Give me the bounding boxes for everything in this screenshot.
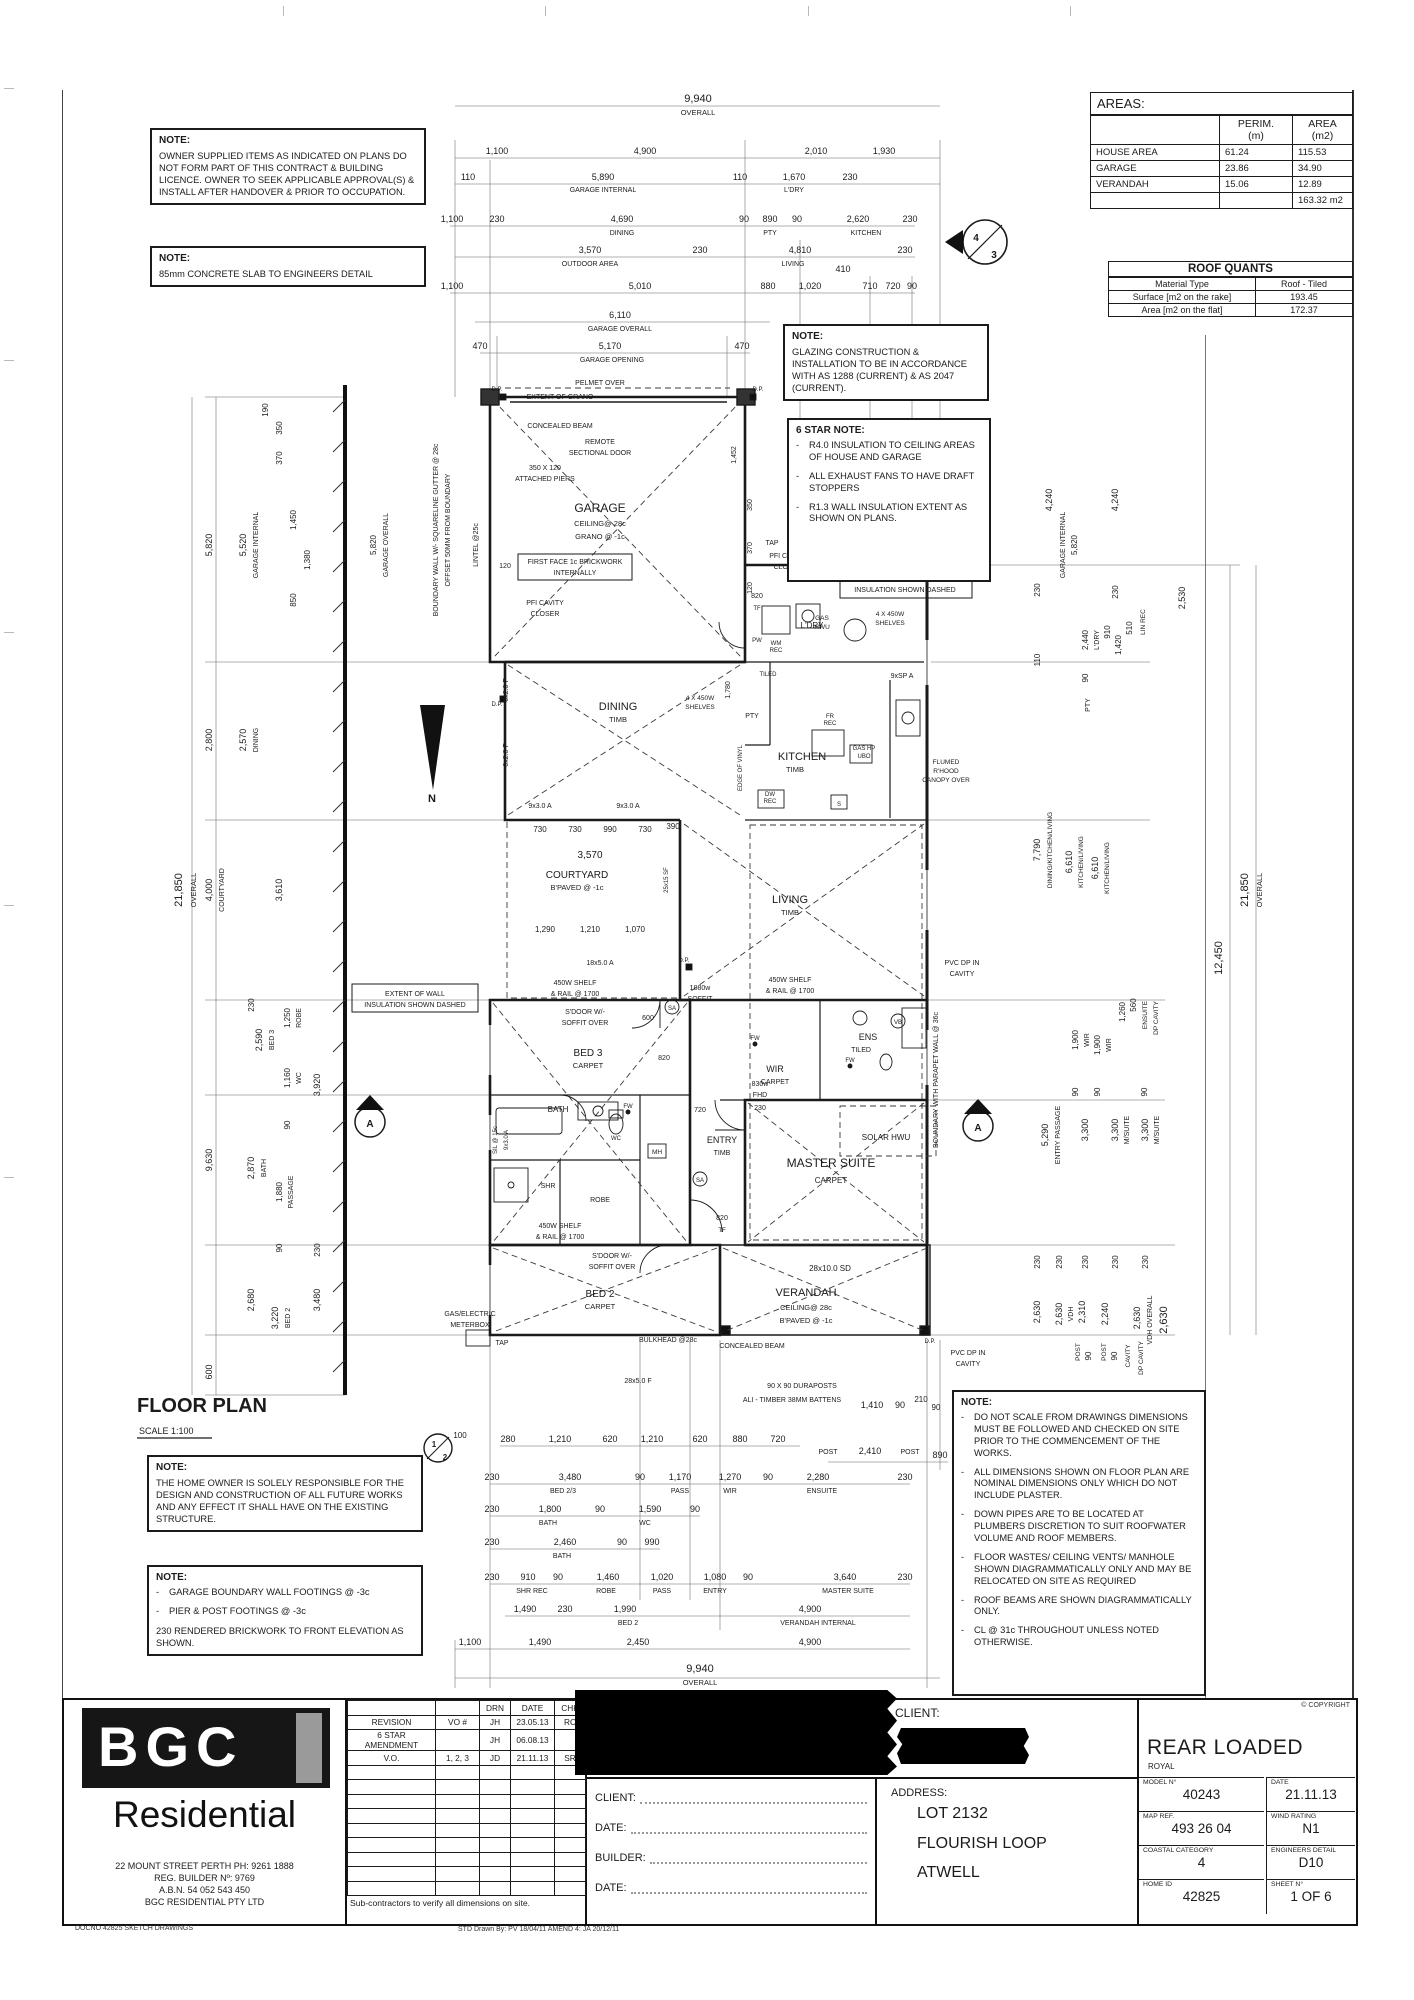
model-cell-value: N1	[1267, 1821, 1355, 1836]
plan-text: 890	[762, 214, 777, 224]
company-address: 22 MOUNT STREET PERTH PH: 9261 1888 REG.…	[64, 1860, 345, 1909]
plan-text: 230	[1111, 585, 1120, 599]
plan-text: GARAGE INTERNAL	[570, 187, 637, 194]
plan-text: 230	[1033, 583, 1042, 597]
plan-text: 350	[747, 499, 754, 511]
plan-text: KITCHEN/LIVING	[1104, 842, 1111, 894]
plan-text: L'DRY	[784, 187, 804, 194]
plan-text: 450W SHELF	[769, 977, 812, 984]
plan-text: 2,440	[1081, 629, 1090, 650]
model-panel: © COPYRIGHT REAR LOADED ROYAL MODEL N°40…	[1139, 1700, 1354, 1924]
table-cell	[1220, 193, 1293, 209]
plan-text: 28x10.0 SD	[809, 1264, 851, 1273]
copyright: © COPYRIGHT	[1301, 1702, 1350, 1709]
plan-text: ENTRY PASSAGE	[1055, 1105, 1062, 1164]
model-cell-label: COASTAL CATEGORY	[1139, 1846, 1264, 1854]
plan-text: 2,590	[254, 1029, 264, 1052]
table-cell	[436, 1730, 480, 1751]
table-cell	[348, 1794, 436, 1809]
plan-text: FHD	[753, 1092, 767, 1099]
plan-text: 880	[760, 281, 775, 291]
plan-text: 90	[739, 214, 749, 224]
plan-text: 230	[489, 214, 504, 224]
model-cell-value: 42825	[1139, 1889, 1264, 1904]
table-cell	[436, 1823, 480, 1838]
model-cell-label: MODEL N°	[1139, 1778, 1264, 1786]
table-row: HOUSE AREA61.24115.53	[1091, 145, 1353, 161]
note-title: NOTE:	[792, 331, 980, 342]
plan-text: 5,820	[204, 534, 214, 557]
plan-text: 990	[603, 825, 617, 834]
table-cell: AREA (m2)	[1293, 116, 1353, 145]
table-cell	[348, 1701, 436, 1716]
plan-text: COURTYARD	[546, 870, 608, 881]
plan-text: DINING	[610, 230, 635, 237]
plan-text: 230	[484, 1504, 499, 1514]
table-cell: DRN	[480, 1701, 511, 1716]
plan-text: KITCHEN/LIVING	[1078, 836, 1085, 888]
plan-text: VERANDAH INTERNAL	[780, 1620, 856, 1627]
plan-text: PTY	[763, 230, 777, 237]
table-cell: 193.45	[1256, 291, 1353, 304]
plan-text: 110	[733, 172, 747, 182]
table-cell: 115.53	[1293, 145, 1353, 161]
plan-text: ENS	[859, 1032, 878, 1042]
plan-text: 90	[617, 1537, 627, 1547]
plan-text: 210	[914, 1395, 928, 1404]
table-cell	[436, 1794, 480, 1809]
plan-text: PASSAGE	[288, 1175, 295, 1208]
plan-text: 28x5.0 F	[624, 1378, 651, 1385]
note-bullet: -CL @ 31c THROUGHOUT UNLESS NOTED OTHERW…	[961, 1625, 1197, 1649]
note-bullet: -FLOOR WASTES/ CEILING VENTS/ MANHOLE SH…	[961, 1552, 1197, 1588]
edge-tick	[1070, 6, 1071, 16]
plan-text: 3,570	[579, 245, 602, 255]
table-cell	[555, 1838, 586, 1853]
table-cell	[511, 1765, 555, 1780]
plan-text: SOFFIT OVER	[562, 1020, 609, 1027]
plan-text: 1,450	[289, 509, 298, 530]
plan-text: REC	[764, 799, 777, 805]
plan-text: CLOSER	[531, 611, 560, 618]
plan-text: 6,610	[1090, 857, 1100, 880]
plan-text: DINING	[253, 728, 260, 753]
model-cell-wind-rating: WIND RATINGN1	[1266, 1811, 1355, 1846]
plan-text: 90	[635, 1472, 645, 1482]
plan-text: GRANO @ -1c	[575, 532, 625, 541]
bgc-panel: BGC Residential 22 MOUNT STREET PERTH PH…	[64, 1700, 345, 1924]
plan-text: 230	[484, 1472, 499, 1482]
plan-text: 90	[932, 1403, 941, 1412]
plan-text: 2,630	[1032, 1301, 1042, 1324]
plan-text: 6,610	[1064, 851, 1074, 874]
plan-text: SHELVES	[875, 620, 905, 627]
floor-plan-sheet: 9,940OVERALL1,1004,9002,0101,9301105,890…	[0, 0, 1414, 2000]
site-address-line: FLOURISH LOOP	[917, 1829, 1137, 1859]
plan-text: 230	[247, 998, 256, 1012]
plan-text: 1,490	[514, 1604, 537, 1614]
plan-text: 510	[1125, 621, 1134, 635]
plan-text: TAP	[495, 1340, 508, 1347]
table-cell	[511, 1852, 555, 1867]
plan-text: 2,410	[859, 1446, 882, 1456]
plan-text: 9,940	[686, 1663, 714, 1675]
table-cell: 12.89	[1293, 177, 1353, 193]
model-cell-date: DATE21.11.13	[1266, 1777, 1355, 1812]
plan-text: 1	[432, 1440, 437, 1449]
plan-text: WC	[639, 1520, 651, 1527]
plan-text: M/SUITE	[1154, 1115, 1161, 1144]
table-cell	[480, 1881, 511, 1896]
sig-builder-label: BUILDER:	[595, 1852, 646, 1864]
plan-text: SECTIONAL DOOR	[569, 450, 631, 457]
site-address-line: LOT 2132	[917, 1799, 1137, 1829]
plan-text: 2,680	[246, 1289, 256, 1312]
plan-text: 3,920	[312, 1074, 322, 1097]
table-cell	[436, 1809, 480, 1824]
note-slab: NOTE: 85mm CONCRETE SLAB TO ENGINEERS DE…	[150, 246, 426, 287]
plan-text: 1,100	[441, 214, 464, 224]
plan-text: TIMB	[714, 1150, 731, 1157]
plan-text: 230	[897, 1572, 912, 1582]
edge-tick	[4, 632, 14, 633]
table-row: Area [m2 on the flat]172.37	[1109, 304, 1353, 317]
plan-text: CARPET	[761, 1079, 790, 1086]
plan-text: PELMET OVER	[575, 380, 625, 387]
plan-text: DW	[765, 792, 775, 798]
plan-text: 4	[973, 233, 979, 244]
table-row: 6 STAR AMENDMENTJH06.08.13	[348, 1730, 586, 1751]
table-cell: 21.11.13	[511, 1751, 555, 1766]
roof-quants-table: ROOF QUANTS Material TypeRoof - TiledSur…	[1108, 261, 1353, 317]
roof-title: ROOF QUANTS	[1108, 261, 1353, 277]
plan-text: 90	[595, 1504, 605, 1514]
plan-text: 7,790	[1032, 839, 1042, 862]
plan-text: R'HOOD	[933, 768, 959, 775]
plan-text: 4,900	[799, 1637, 822, 1647]
plan-text: S'DOOR W/-	[565, 1009, 606, 1016]
plan-text: 9xSP A	[891, 673, 914, 680]
plan-text: 5,290	[1040, 1124, 1050, 1147]
model-cell-value: 4	[1139, 1855, 1264, 1870]
plan-text: SCALE 1:100	[139, 1426, 194, 1436]
plan-text: EDGE OF VINYL	[738, 744, 744, 791]
plan-text: ENTRY	[707, 1135, 737, 1145]
plan-text: LIVING	[782, 261, 805, 268]
table-row	[348, 1867, 586, 1882]
plan-text: 9x3.0 A	[528, 803, 552, 810]
model-cell-value: 1 OF 6	[1267, 1889, 1355, 1904]
plan-text: 600	[204, 1364, 214, 1379]
plan-text: 90	[907, 281, 917, 291]
plan-text: 110	[461, 172, 475, 182]
table-row	[348, 1794, 586, 1809]
plan-text: WIR	[766, 1064, 784, 1074]
table-cell: DATE	[511, 1701, 555, 1716]
note-bullet: -R1.3 WALL INSULATION EXTENT AS SHOWN ON…	[796, 502, 982, 526]
plan-text: POST	[818, 1449, 838, 1456]
plan-text: 730	[533, 825, 547, 834]
bgc-logo: BGC	[82, 1708, 330, 1788]
plan-text: 720	[694, 1107, 706, 1114]
plan-text: GARAGE OVERALL	[588, 326, 652, 333]
plan-text: 2,450	[627, 1637, 650, 1647]
plan-text: SIL @ 15c	[493, 1126, 499, 1154]
table-cell	[511, 1881, 555, 1896]
note-bullet: -ALL DIMENSIONS SHOWN ON FLOOR PLAN ARE …	[961, 1467, 1197, 1503]
plan-text: 230	[1055, 1255, 1064, 1269]
plan-text: 90	[895, 1400, 905, 1410]
model-cell-map-ref-: MAP REF.493 26 04	[1139, 1811, 1264, 1846]
plan-text: EXTENT OF WALL	[385, 991, 445, 998]
plan-text: 90	[1081, 673, 1090, 682]
table-row: Material TypeRoof - Tiled	[1109, 278, 1353, 291]
table-cell	[480, 1780, 511, 1795]
plan-text: ROBE	[296, 1008, 303, 1028]
table-cell	[348, 1765, 436, 1780]
sheet-border-left	[62, 90, 63, 1922]
plan-text: PASS	[671, 1488, 689, 1495]
table-row: V.O.1, 2, 3JD21.11.13SR	[348, 1751, 586, 1766]
plan-text: CARPET	[585, 1302, 616, 1311]
plan-text: ROBE	[590, 1197, 610, 1204]
signature-panel: CLIENT: DATE: BUILDER: DATE:	[587, 1779, 875, 1924]
plan-text: 1,670	[783, 172, 806, 182]
plan-text: 4 X 450W	[876, 611, 905, 618]
note-bullet: -ALL EXHAUST FANS TO HAVE DRAFT STOPPERS	[796, 471, 982, 495]
edge-tick	[4, 1177, 14, 1178]
plan-text: GARAGE OPENING	[580, 357, 644, 364]
plan-text: SA	[696, 1178, 704, 1184]
plan-text: 230	[484, 1572, 499, 1582]
plan-text: 1,780	[725, 681, 732, 699]
plan-text: 710	[862, 281, 877, 291]
plan-text: 910	[1103, 625, 1112, 639]
plan-text: BED 2/3	[550, 1488, 576, 1495]
table-cell	[480, 1809, 511, 1824]
table-cell	[555, 1823, 586, 1838]
plan-text: UBO	[857, 754, 870, 760]
plan-text: 2,310	[1077, 1301, 1087, 1324]
table-cell	[555, 1852, 586, 1867]
plan-text: DINING	[599, 701, 638, 713]
note-bullet: -R4.0 INSULATION TO CEILING AREAS OF HOU…	[796, 440, 982, 464]
plan-text: ENTRY	[703, 1588, 727, 1595]
plan-text: 4,240	[1044, 489, 1054, 512]
table-row: DRNDATECHK	[348, 1701, 586, 1716]
plan-text: KITCHEN	[778, 751, 826, 763]
table-cell	[555, 1780, 586, 1795]
table-cell: GARAGE	[1091, 161, 1220, 177]
edge-tick	[545, 6, 546, 16]
plan-text: 1,420	[1114, 634, 1123, 655]
plan-text: 90	[792, 214, 802, 224]
plan-text: 2,800	[204, 729, 214, 752]
plan-text: CAVITY	[1125, 1344, 1132, 1368]
table-cell	[480, 1823, 511, 1838]
plan-text: 450W SHELF	[554, 980, 597, 987]
plan-text: 2,280	[807, 1472, 830, 1482]
plan-text: 110	[1033, 653, 1042, 666]
plan-text: 1,100	[441, 281, 464, 291]
plan-text: 1,900	[1071, 1029, 1080, 1050]
note-bullet-list: -R4.0 INSULATION TO CEILING AREAS OF HOU…	[796, 440, 982, 525]
plan-text: WIR	[723, 1488, 737, 1495]
plan-text: VERANDAH	[775, 1287, 836, 1299]
plan-text: FR	[826, 714, 835, 720]
table-cell: 23.86	[1220, 161, 1293, 177]
plan-text: 1,452	[731, 446, 738, 464]
plan-text: 2,870	[246, 1157, 256, 1180]
table-cell: 23.05.13	[511, 1715, 555, 1730]
plan-text: GAS/ELECTRIC	[444, 1311, 495, 1318]
plan-text: 1,070	[625, 925, 646, 934]
plan-text: 2,460	[554, 1537, 577, 1547]
plan-text: 90	[1084, 1351, 1093, 1360]
plan-text: 880	[732, 1434, 747, 1444]
table-cell	[436, 1780, 480, 1795]
plan-text: 1,100	[459, 1637, 482, 1647]
signature-line[interactable]	[631, 1881, 867, 1894]
plan-text: GAS HP	[853, 746, 876, 752]
table-cell: HOUSE AREA	[1091, 145, 1220, 161]
plan-text: 990	[644, 1537, 659, 1547]
note-bullet: -PIER & POST FOOTINGS @ -3c	[156, 1606, 414, 1618]
plan-text: A	[974, 1123, 981, 1134]
model-cell-value: D10	[1267, 1855, 1355, 1870]
plan-text: 230	[754, 1105, 766, 1112]
plan-text: EXTENT OF GRANO	[527, 394, 594, 401]
plan-text: PW	[752, 638, 762, 644]
plan-text: INSULATION SHOWN DASHED	[854, 587, 955, 594]
plan-text: TILED	[851, 1047, 871, 1054]
note-body: THE HOME OWNER IS SOLELY RESPONSIBLE FOR…	[156, 1477, 414, 1525]
table-cell	[348, 1809, 436, 1824]
plan-text: 3,300	[1110, 1119, 1120, 1142]
table-row	[348, 1852, 586, 1867]
plan-text: 2	[443, 1453, 448, 1462]
table-cell	[436, 1701, 480, 1716]
plan-text: BATH	[261, 1159, 268, 1177]
table-cell: 6 STAR AMENDMENT	[348, 1730, 436, 1751]
model-cell-engineers-detail: ENGINEERS DETAILD10	[1266, 1845, 1355, 1880]
plan-text: GARAGE INTERNAL	[1060, 512, 1067, 579]
note-bullet: -GARAGE BOUNDARY WALL FOOTINGS @ -3c	[156, 1587, 414, 1599]
plan-text: 3,300	[1140, 1119, 1150, 1142]
table-cell	[348, 1881, 436, 1896]
plan-text: 1,210	[580, 925, 601, 934]
signature-line[interactable]	[631, 1821, 867, 1834]
note-footings: NOTE: -GARAGE BOUNDARY WALL FOOTINGS @ -…	[147, 1565, 423, 1656]
plan-text: BED 2	[618, 1620, 638, 1627]
plan-text: OUTDOOR AREA	[562, 261, 619, 268]
plan-text: D.P.	[492, 387, 503, 393]
table-row: GARAGE23.8634.90	[1091, 161, 1353, 177]
note-bullet-list: -DO NOT SCALE FROM DRAWINGS DIMENSIONS M…	[961, 1412, 1197, 1649]
plan-text: BED 3	[574, 1048, 603, 1059]
plan-text: 2,620	[847, 214, 870, 224]
model-cell-label: SHEET N°	[1267, 1880, 1355, 1888]
note-body: 85mm CONCRETE SLAB TO ENGINEERS DETAIL	[159, 268, 417, 280]
table-cell: PERIM. (m)	[1220, 116, 1293, 145]
note-title: NOTE:	[159, 135, 417, 146]
table-row	[348, 1809, 586, 1824]
plan-text: 280	[500, 1434, 515, 1444]
plan-text: 2,530	[1177, 587, 1187, 610]
sheet-border-right	[1352, 90, 1354, 1922]
plan-text: 230	[1081, 1255, 1090, 1269]
plan-text: POST	[1075, 1343, 1082, 1361]
plan-text: OVERALL	[683, 1678, 718, 1687]
plan-text: 230	[557, 1604, 572, 1614]
areas-title: AREAS:	[1090, 92, 1353, 115]
plan-text: BATH	[548, 1105, 569, 1114]
plan-text: 410	[835, 264, 850, 274]
table-row	[348, 1838, 586, 1853]
plan-text: ALI - TIMBER 38MM BATTENS	[743, 1397, 841, 1404]
plan-text: GARAGE INTERNAL	[253, 512, 260, 579]
signature-line[interactable]	[650, 1851, 867, 1864]
table-row: VERANDAH15.0612.89	[1091, 177, 1353, 193]
table-cell: 34.90	[1293, 161, 1353, 177]
site-address-panel: ADDRESS: LOT 2132 FLOURISH LOOP ATWELL	[877, 1779, 1137, 1924]
plan-text: 9,940	[684, 93, 712, 105]
plan-text: SHR	[541, 1183, 556, 1190]
plan-text: 230	[897, 1472, 912, 1482]
table-cell	[348, 1838, 436, 1853]
plan-text: TIMB	[786, 765, 804, 774]
table-row	[348, 1823, 586, 1838]
note-body: OWNER SUPPLIED ITEMS AS INDICATED ON PLA…	[159, 150, 417, 198]
plan-text: L'DRY	[1094, 630, 1101, 650]
plan-text: 1,170	[669, 1472, 692, 1482]
plan-text: 1,020	[651, 1572, 674, 1582]
plan-text: 350	[275, 421, 284, 435]
plan-text: 470	[734, 341, 749, 351]
bgc-logo-mark	[296, 1713, 322, 1783]
table-cell: V.O.	[348, 1751, 436, 1766]
plan-text: 1,590	[639, 1504, 662, 1514]
table-cell	[436, 1765, 480, 1780]
plan-text: CARPET	[815, 1176, 848, 1185]
address-line: BGC RESIDENTIAL PTY LTD	[64, 1896, 345, 1908]
plan-text: 1,250	[283, 1007, 292, 1028]
plan-text: 6x2.0 F	[503, 678, 510, 701]
revision-panel: DRNDATECHKREVISIONVO #JH23.05.13RC6 STAR…	[347, 1700, 585, 1924]
plan-text: 3	[991, 250, 997, 261]
table-cell: REVISION	[348, 1715, 436, 1730]
plan-text: FIRST FACE 1c BRICKWORK	[528, 559, 623, 566]
note-title: NOTE:	[159, 253, 417, 264]
plan-text: INSULATION SHOWN DASHED	[364, 1002, 465, 1009]
std-drawn-by: STD Drawn By: PV 18/04/11 AMEND 4: JA 20…	[458, 1926, 619, 1933]
plan-text: CONCEALED BEAM	[527, 423, 593, 430]
plan-text: 230	[902, 214, 917, 224]
note-bullet: -DO NOT SCALE FROM DRAWINGS DIMENSIONS M…	[961, 1412, 1197, 1460]
plan-text: REMOTE	[585, 439, 615, 446]
series-name: REAR LOADED	[1147, 1736, 1303, 1760]
plan-text: REC	[770, 648, 783, 654]
table-cell	[511, 1867, 555, 1882]
plan-text: L'DRY	[801, 621, 824, 630]
address-line: 22 MOUNT STREET PERTH PH: 9261 1888	[64, 1860, 345, 1872]
table-cell	[480, 1852, 511, 1867]
signature-line[interactable]	[640, 1791, 867, 1804]
plan-text: PFI CAVITY	[526, 600, 564, 607]
plan-text: 600	[642, 1015, 654, 1022]
plan-text: 1,900	[1093, 1034, 1102, 1055]
plan-text: 230	[1033, 1255, 1042, 1269]
